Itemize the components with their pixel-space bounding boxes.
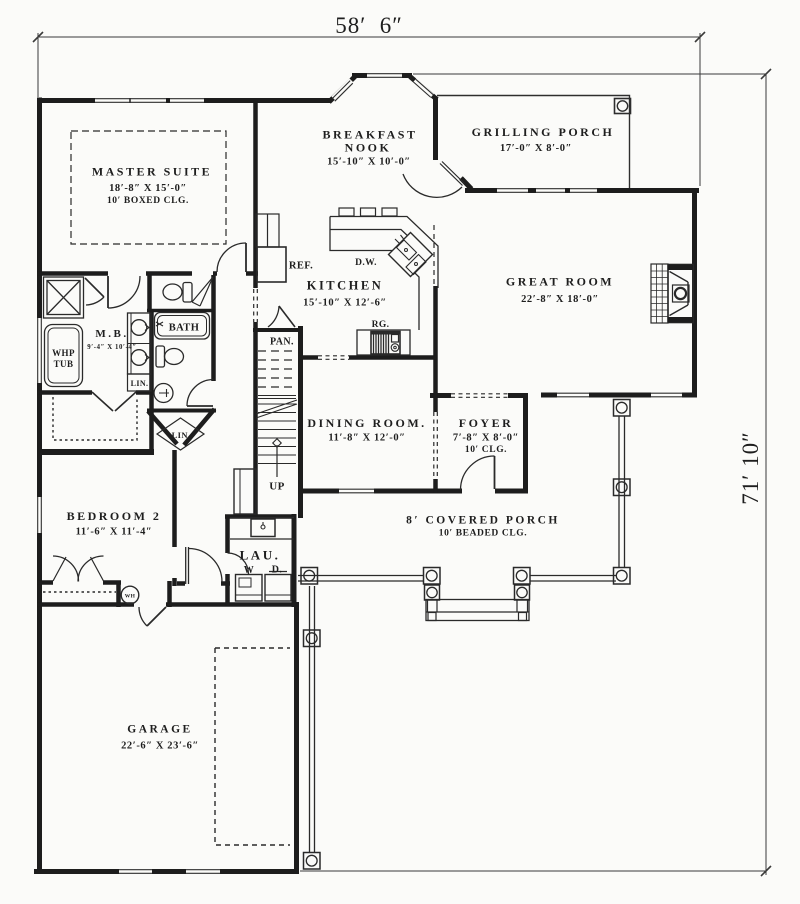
svg-text:WH: WH [125,594,136,600]
svg-text:GREAT ROOM: GREAT ROOM [506,275,614,289]
svg-text:15′-10″ X 10′-0″: 15′-10″ X 10′-0″ [327,157,411,168]
svg-text:PAN.: PAN. [270,337,294,348]
svg-text:15′-10″ X 12′-6″: 15′-10″ X 12′-6″ [303,298,387,309]
svg-text:LIN.: LIN. [172,430,191,440]
svg-text:UP: UP [269,481,284,493]
svg-text:9′-4″ X 10′-4″: 9′-4″ X 10′-4″ [87,344,137,351]
svg-text:22′-6″ X 23′-6″: 22′-6″ X 23′-6″ [121,741,199,752]
svg-text:W: W [244,565,254,576]
svg-text:M.B.: M.B. [95,328,128,340]
svg-text:BATH: BATH [169,323,200,334]
svg-text:GARAGE: GARAGE [127,724,192,736]
svg-text:10′ CLG.: 10′ CLG. [465,445,507,455]
svg-text:7′-8″ X 8′-0″: 7′-8″ X 8′-0″ [453,433,519,444]
svg-text:REF.: REF. [289,261,313,272]
svg-text:GRILLING PORCH: GRILLING PORCH [472,125,615,139]
svg-text:DINING ROOM.: DINING ROOM. [307,416,426,430]
svg-text:18′-8″ X 15′-0″: 18′-8″ X 15′-0″ [109,183,187,194]
svg-text:RG.: RG. [372,320,390,330]
svg-text:LIN.: LIN. [131,379,149,388]
svg-text:22′-8″ X 18′-0″: 22′-8″ X 18′-0″ [521,294,599,305]
svg-text:BEDROOM 2: BEDROOM 2 [67,509,162,523]
svg-text:NOOK: NOOK [345,141,392,155]
svg-text:11′-6″ X 11′-4″: 11′-6″ X 11′-4″ [76,527,153,538]
svg-text:BREAKFAST: BREAKFAST [323,128,418,142]
svg-text:8′ COVERED PORCH: 8′ COVERED PORCH [406,515,560,527]
svg-text:11′-8″ X 12′-0″: 11′-8″ X 12′-0″ [328,433,405,444]
svg-text:10′ BOXED CLG.: 10′ BOXED CLG. [107,196,189,206]
svg-text:LAU.: LAU. [240,548,281,563]
svg-text:17′-0″ X 8′-0″: 17′-0″ X 8′-0″ [500,143,572,154]
svg-text:WHP: WHP [52,348,75,358]
svg-text:FOYER: FOYER [459,416,514,430]
svg-text:D.W.: D.W. [355,258,377,268]
svg-text:KITCHEN: KITCHEN [307,279,384,293]
svg-text:D.: D. [272,565,283,576]
svg-text:58′ 6″: 58′ 6″ [335,13,403,38]
svg-text:TUB: TUB [54,359,74,369]
svg-text:MASTER SUITE: MASTER SUITE [92,165,212,179]
svg-text:71′ 10″: 71′ 10″ [738,431,763,504]
svg-text:10′ BEADED CLG.: 10′ BEADED CLG. [439,529,527,539]
